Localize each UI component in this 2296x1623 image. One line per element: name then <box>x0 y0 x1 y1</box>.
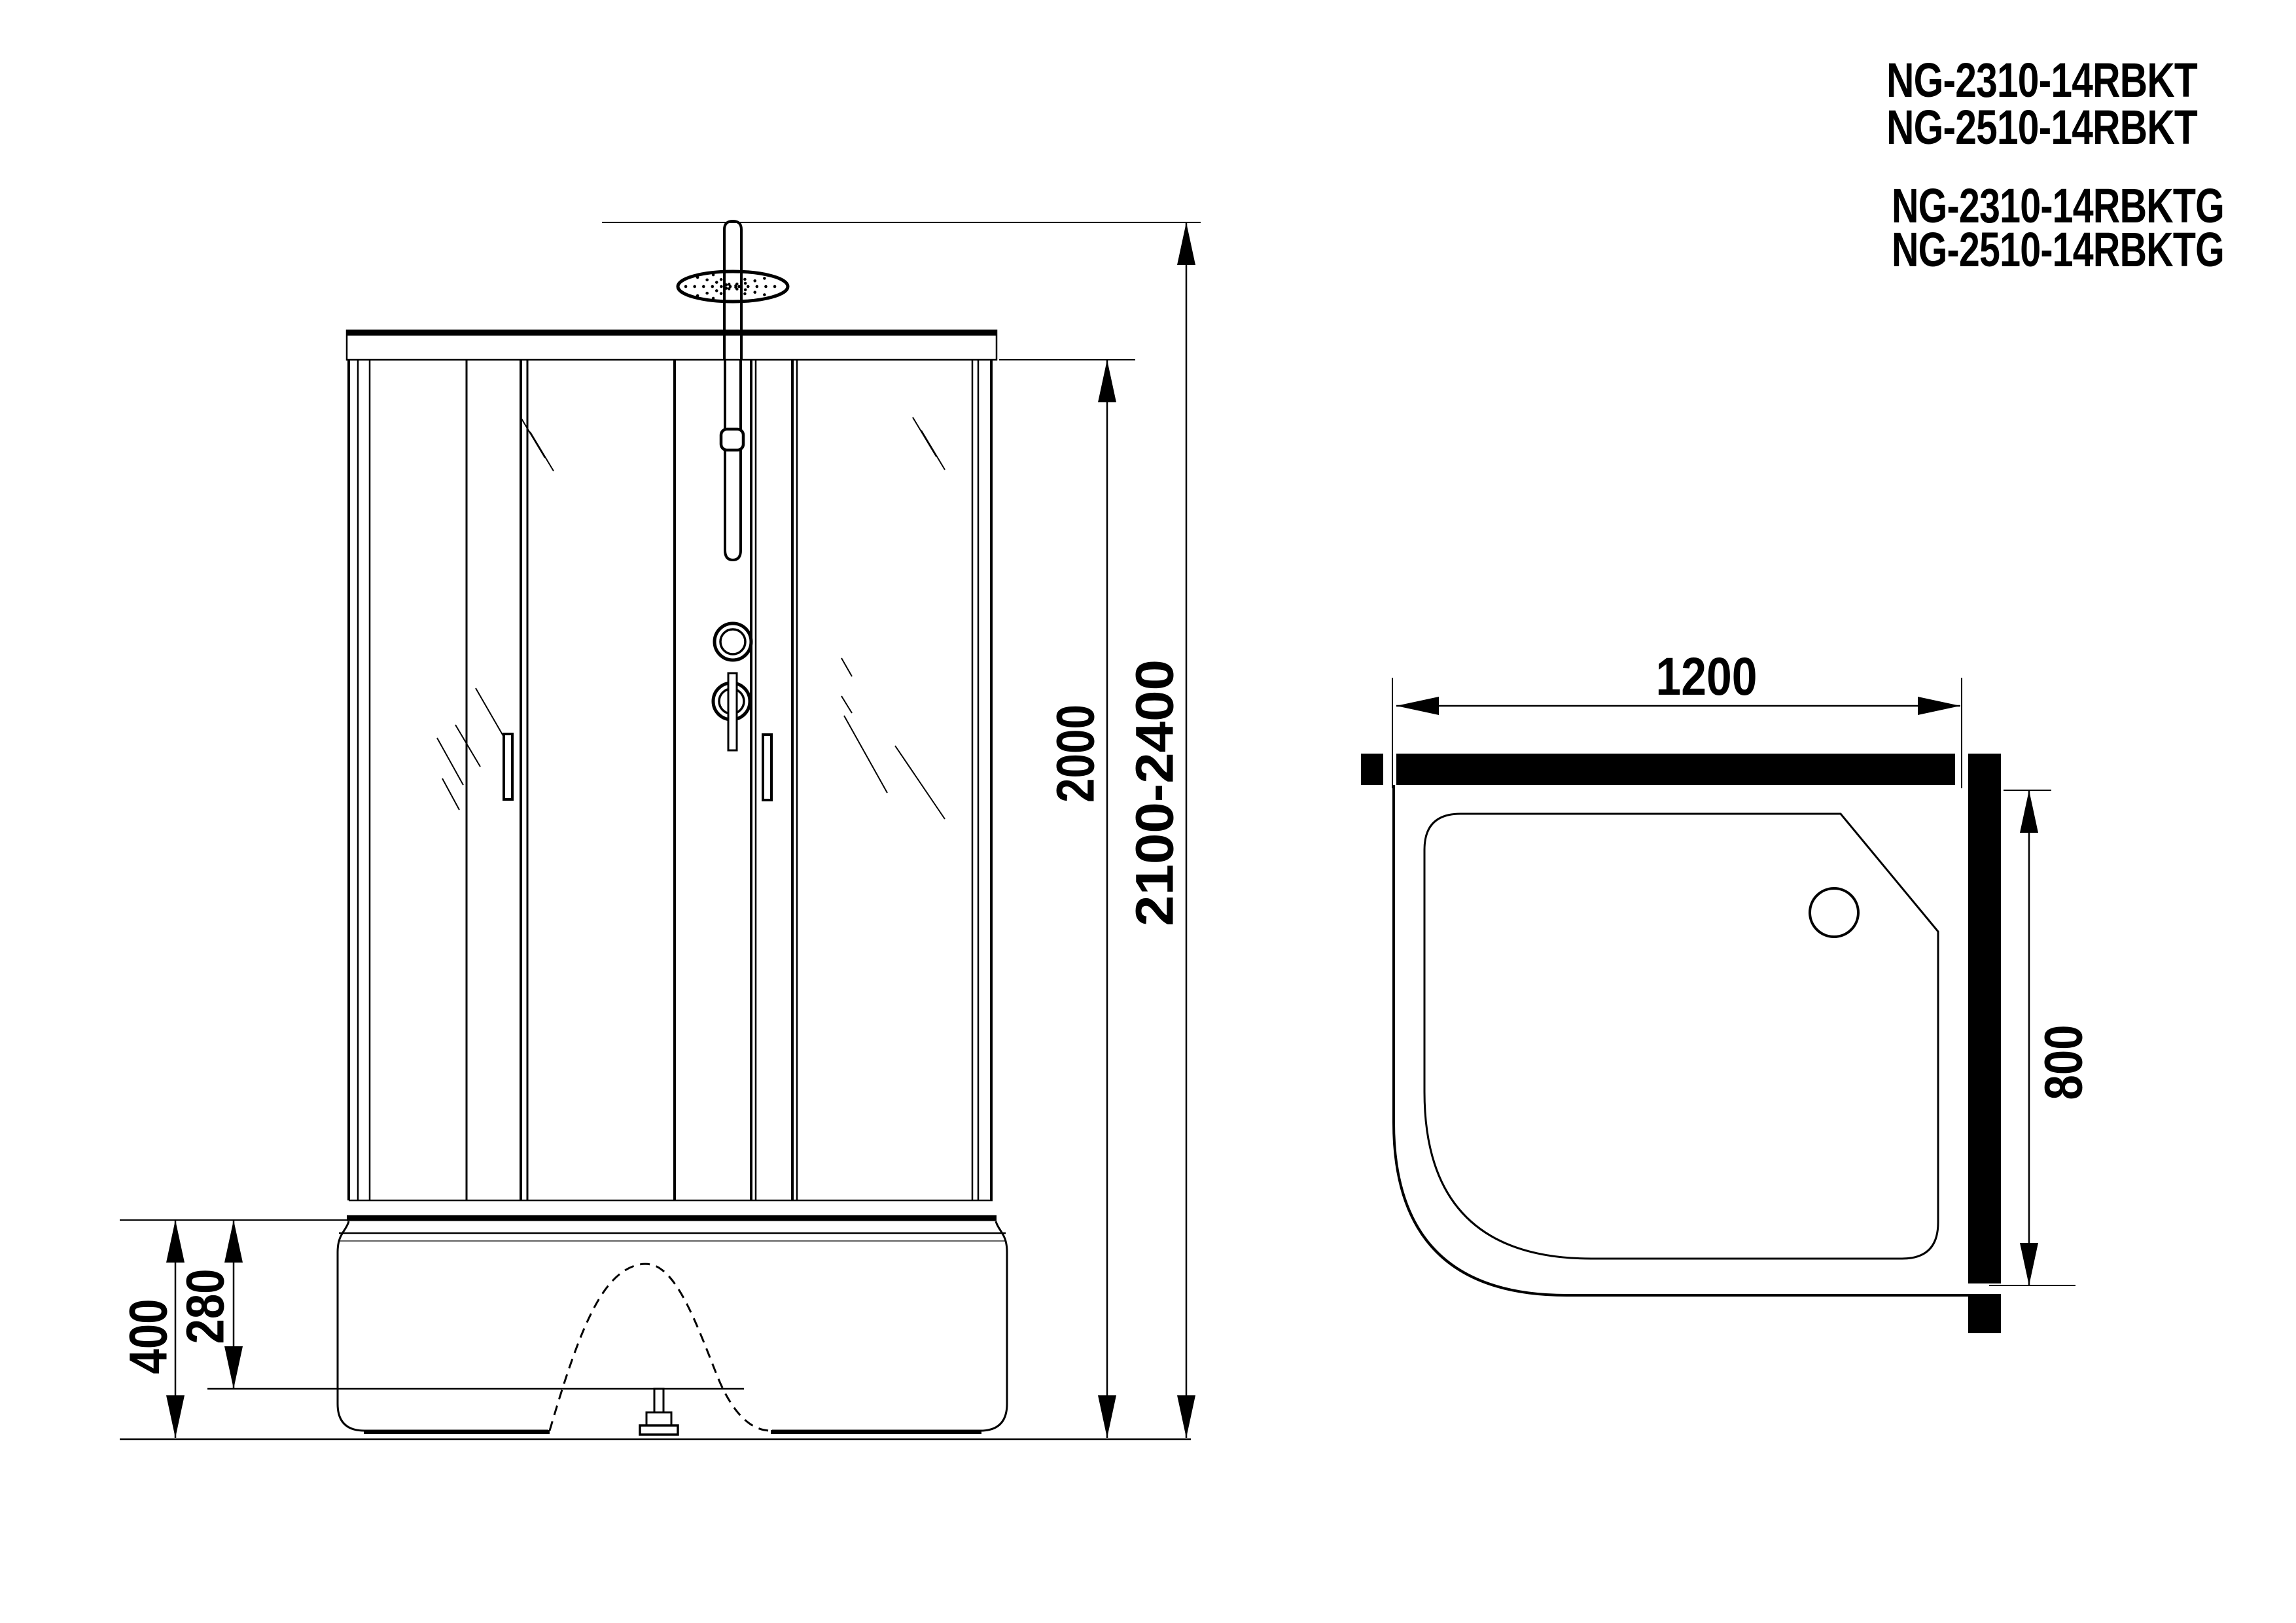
top-wall-bar-stub-left <box>1361 754 1383 785</box>
arrow-down-icon <box>166 1395 185 1438</box>
wall-profiles <box>1361 754 2001 1333</box>
arrow-up-icon <box>2020 790 2038 833</box>
right-door-handle <box>763 735 771 800</box>
top-view: 1200 800 <box>1361 647 2094 1333</box>
dimension-label-cabin-height: 2000 <box>1046 705 1106 803</box>
dimension-total-height: 2100-2400 <box>1125 222 1195 1438</box>
reflection-stroke <box>841 696 852 713</box>
shower-head-spray-dots <box>686 275 780 298</box>
arrow-left-icon <box>1396 697 1439 715</box>
top-wall-bar-corner <box>1968 754 2001 785</box>
reflection-stroke <box>476 688 505 739</box>
arrow-up-icon <box>224 1220 243 1263</box>
dimension-cabin-height: 2000 <box>1046 360 1116 1438</box>
dimension-label-tray-inner-height: 280 <box>176 1269 236 1344</box>
right-wall-bar-stub <box>1968 1294 2001 1333</box>
dimension-depth: 800 <box>1989 790 2094 1285</box>
front-view <box>120 221 1191 1439</box>
shower-tray-front <box>207 1221 1007 1435</box>
title-block: NG-2310-14RBKT NG-2510-14RBKT NG-2310-14… <box>1886 53 2224 277</box>
reflection-stroke <box>921 430 945 470</box>
dimension-label-depth: 800 <box>2034 1025 2094 1100</box>
tray-inner-outline <box>1424 814 1938 1259</box>
arrow-down-icon <box>1098 1395 1116 1438</box>
arrow-right-icon <box>1918 697 1960 715</box>
dimension-tray-inner-height: 280 <box>176 1220 243 1389</box>
dimension-label-tray-height: 400 <box>119 1299 179 1374</box>
model-number-2: NG-2510-14RBKT <box>1886 100 2198 154</box>
top-wall-bar <box>1396 754 1955 785</box>
left-door-handle <box>504 734 512 799</box>
tray-foot-base <box>640 1425 678 1435</box>
front-view-dimensions: 400 280 2000 2100-2400 <box>119 222 1201 1438</box>
shower-cabin-drawing: NG-2310-14RBKT NG-2510-14RBKT NG-2310-14… <box>0 0 2296 1623</box>
right-wall-bar <box>1968 785 2001 1283</box>
drain-hole-icon <box>1810 888 1858 937</box>
dimension-label-total-height: 2100-2400 <box>1125 659 1185 926</box>
model-number-1: NG-2310-14RBKT <box>1886 53 2198 107</box>
reflection-stroke <box>844 716 887 793</box>
drawing-sheet: NG-2310-14RBKT NG-2510-14RBKT NG-2310-14… <box>0 0 2296 1623</box>
reflection-stroke <box>455 725 480 767</box>
tray-outer-outline <box>1394 785 1968 1295</box>
arrow-down-icon <box>2020 1243 2038 1285</box>
arrow-up-icon <box>166 1220 185 1263</box>
reflection-stroke <box>530 432 554 471</box>
reflection-stroke <box>437 738 463 785</box>
arrow-up-icon <box>1177 222 1195 265</box>
arrow-down-icon <box>224 1346 243 1389</box>
tray-outline-left <box>338 1221 548 1431</box>
arrow-up-icon <box>1098 360 1116 402</box>
dimension-tray-height: 400 <box>119 1220 185 1438</box>
tray-outline-right <box>772 1221 1007 1431</box>
shower-rail-slider <box>721 429 743 450</box>
tray-foot-block <box>646 1412 671 1425</box>
glass-panel-frame-lines <box>349 360 991 1200</box>
reflection-stroke <box>442 778 459 810</box>
mixer-knob-upper-inner <box>720 629 745 654</box>
shower-column <box>713 360 751 750</box>
mixer-lever <box>728 673 737 750</box>
reflection-stroke <box>841 658 852 676</box>
model-number-4: NG-2510-14RBKTG <box>1892 222 2224 277</box>
shower-rail <box>725 360 741 560</box>
reflection-stroke <box>895 746 945 819</box>
arrow-down-icon <box>1177 1395 1195 1438</box>
dimension-label-width: 1200 <box>1656 647 1757 707</box>
drain-pipe-stem <box>654 1389 663 1412</box>
